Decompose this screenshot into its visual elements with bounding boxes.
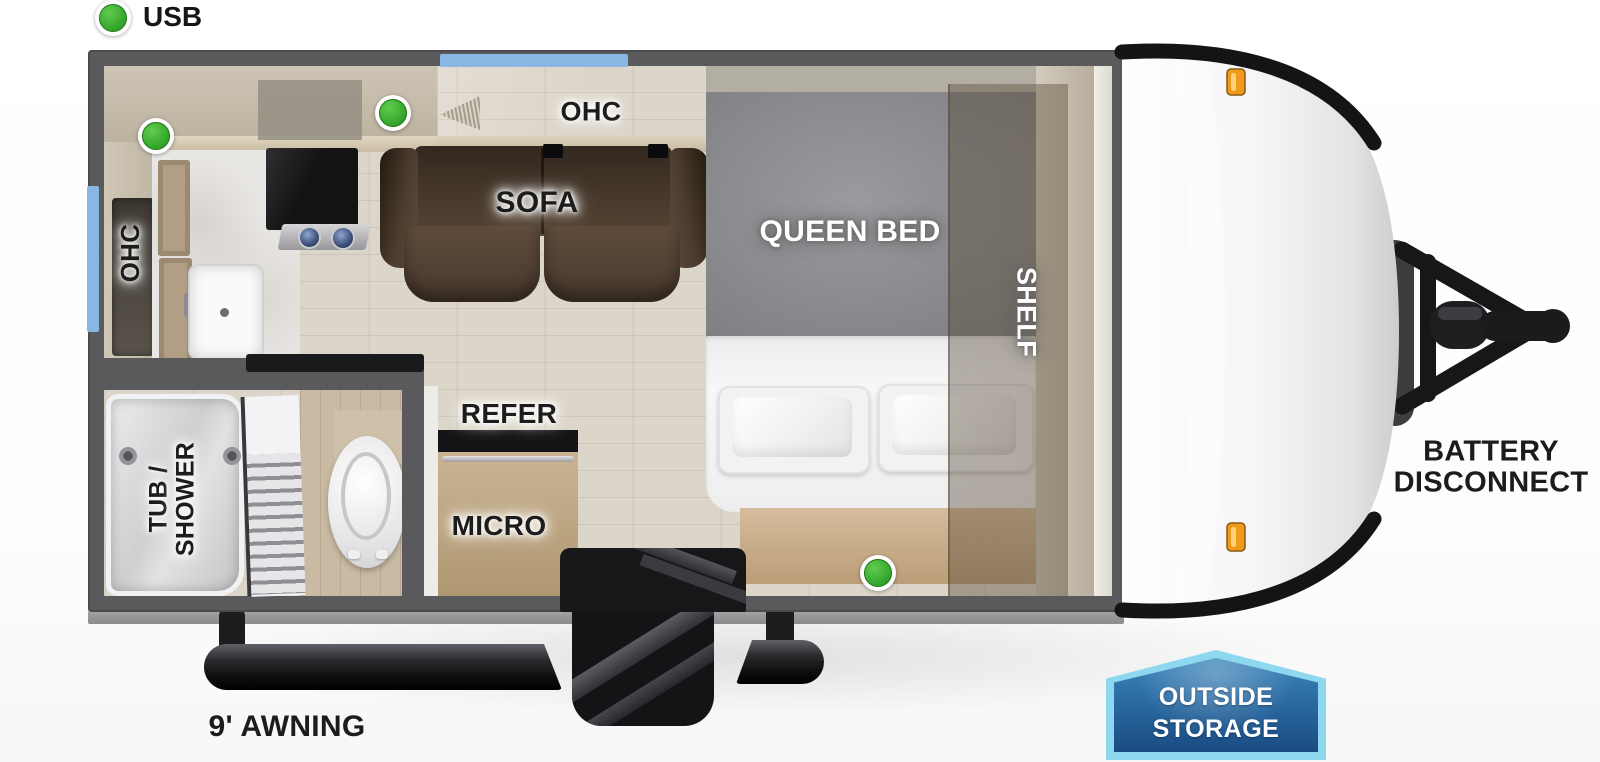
outside-storage-text: OUTSIDE STORAGE	[1114, 682, 1318, 745]
label-refer: REFER	[461, 399, 557, 429]
outside-storage-badge-fill: OUTSIDE STORAGE	[1114, 658, 1318, 752]
usb-legend-icon	[99, 4, 127, 32]
label-queen-bed: QUEEN BED	[759, 216, 940, 248]
label-kitchen-ohc: OHC	[117, 224, 145, 283]
usb-legend-label: USB	[143, 1, 202, 33]
front-cap-hitch	[0, 0, 1600, 762]
label-battery-line2: DISCONNECT	[1394, 467, 1589, 498]
legend: USB	[99, 0, 299, 40]
floorplan-stage: OHC OHC SOFA QUEEN BED SHELF REFER MICRO…	[0, 0, 1600, 762]
tongue-jack-highlight	[1438, 307, 1482, 320]
usb-port-icon	[864, 559, 892, 587]
marker-light-icon	[1227, 523, 1245, 551]
label-battery-disconnect: BATTERY DISCONNECT	[1394, 436, 1589, 497]
label-living-ohc: OHC	[561, 98, 622, 127]
usb-port-icon	[379, 99, 407, 127]
label-tub-shower: TUB / SHOWER	[146, 442, 199, 556]
outside-storage-line1: OUTSIDE	[1114, 682, 1318, 714]
label-micro: MICRO	[452, 511, 547, 541]
label-tub-line1: TUB /	[146, 442, 173, 556]
label-shelf: SHELF	[1012, 267, 1041, 357]
coupler-tip	[1536, 309, 1570, 343]
label-battery-line1: BATTERY	[1394, 436, 1589, 467]
label-awning: 9' AWNING	[208, 711, 365, 743]
usb-port-icon	[142, 122, 170, 150]
front-cap-sheen	[1190, 62, 1208, 600]
label-tub-line2: SHOWER	[172, 442, 199, 556]
marker-light-icon	[1227, 69, 1245, 95]
outside-storage-line2: STORAGE	[1114, 714, 1318, 746]
front-cap	[1122, 56, 1399, 607]
label-sofa: SOFA	[496, 187, 579, 219]
